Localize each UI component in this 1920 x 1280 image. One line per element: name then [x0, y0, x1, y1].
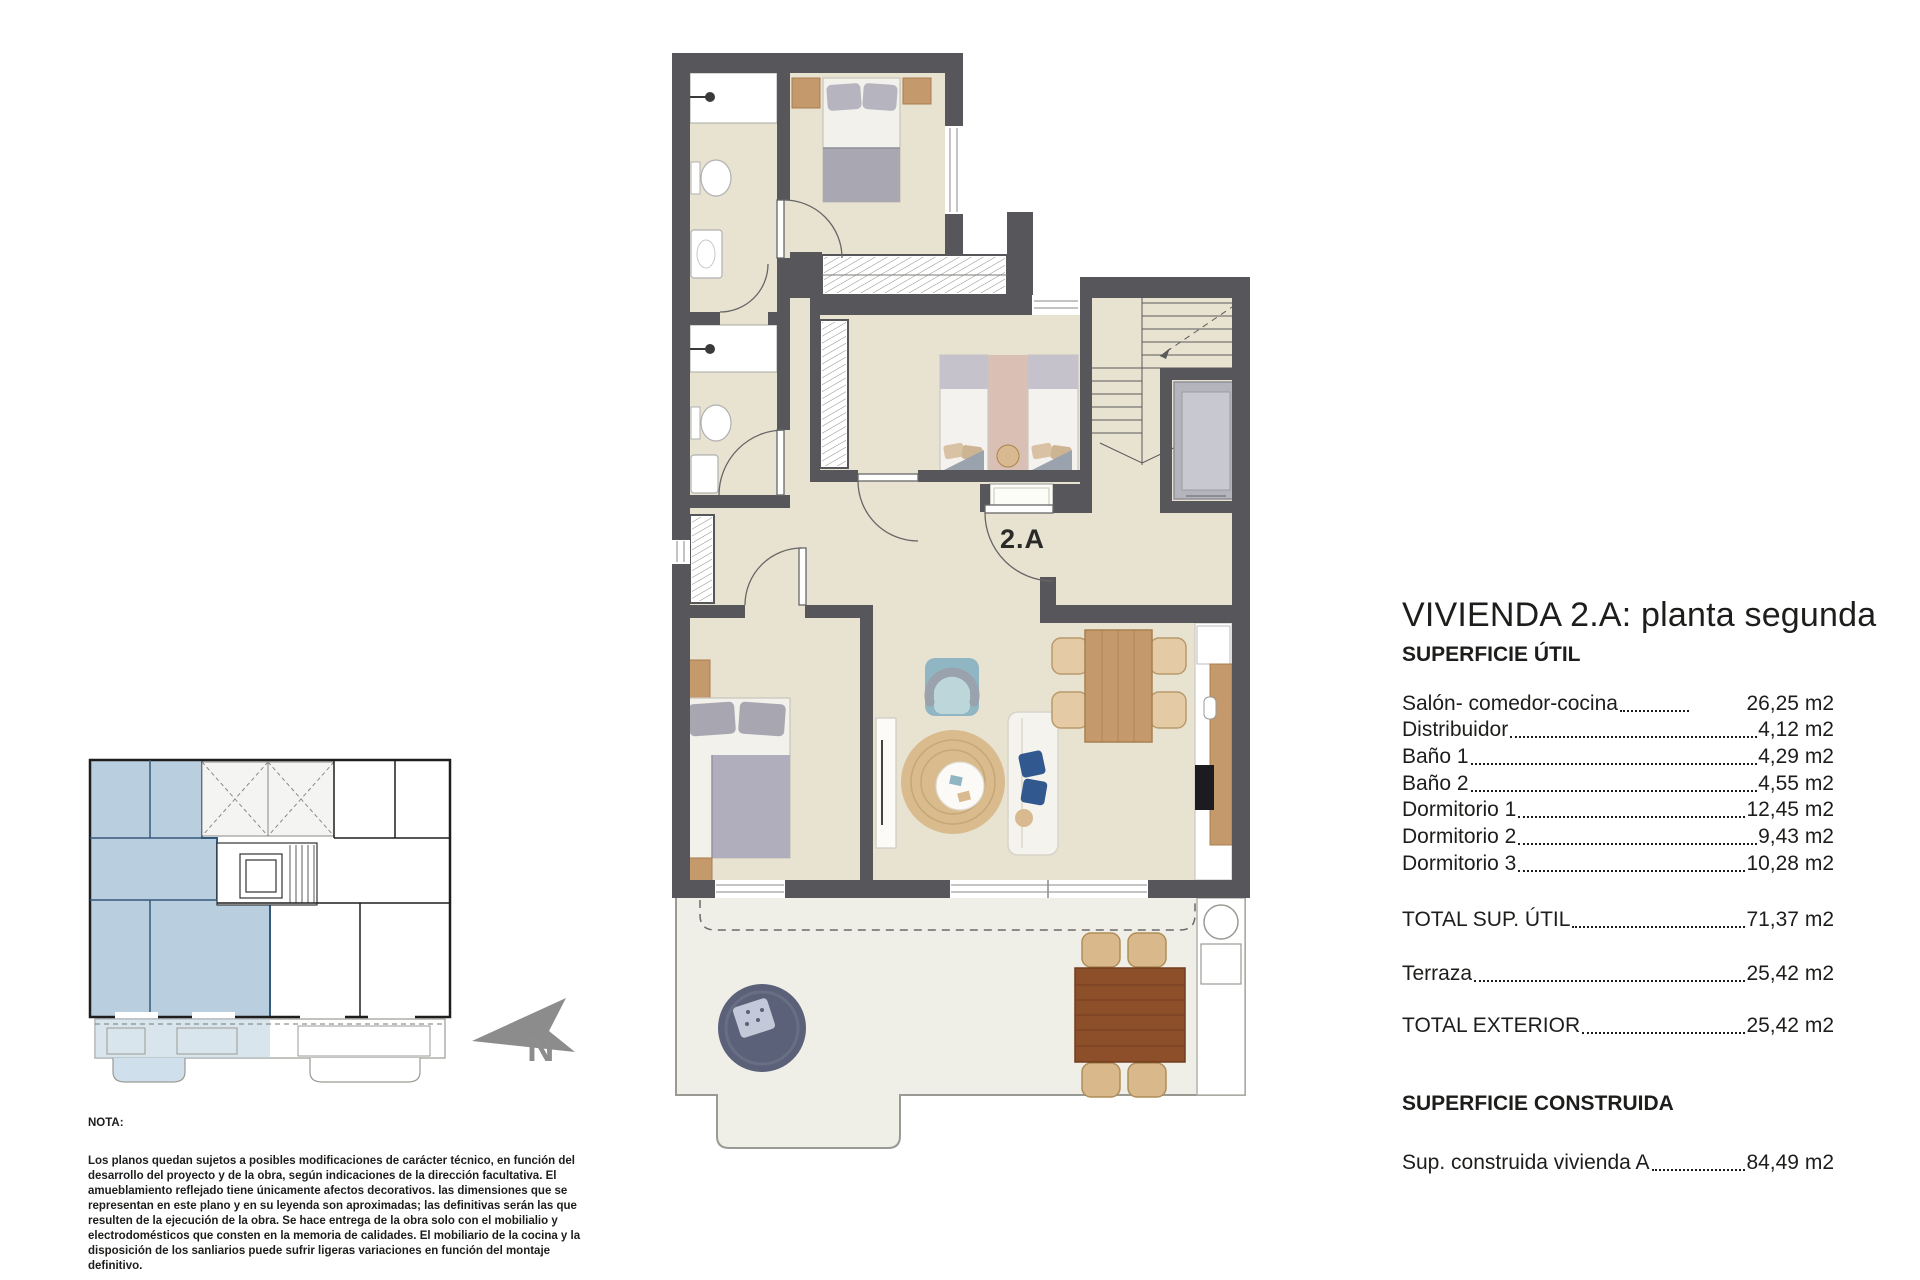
shower-head-icon: [705, 344, 715, 354]
row-label: Dormitorio 3: [1402, 852, 1516, 876]
row-label: Dormitorio 1: [1402, 798, 1516, 822]
terrace-basin: [1204, 905, 1238, 939]
dot-leader: [1572, 926, 1745, 928]
row-label: Salón- comedor-cocina: [1402, 692, 1618, 716]
main-floorplan: [672, 53, 1250, 1148]
tv-console: [876, 718, 896, 848]
row-label: Dormitorio 2: [1402, 825, 1516, 849]
kitchen: [1195, 623, 1232, 880]
page-title: VIVIENDA 2.A: planta segunda: [1402, 596, 1834, 635]
surface-row: Baño 1 4,29 m2: [1402, 742, 1834, 769]
section-superficie-construida: SUPERFICIE CONSTRUIDA: [1402, 1092, 1834, 1116]
row-value: 84,49 m2: [1746, 1151, 1834, 1175]
row-value: 4,29 m2: [1758, 745, 1834, 769]
dot-leader: [1620, 710, 1690, 712]
terrace: [676, 898, 1245, 1148]
row-value: 25,42 m2: [1746, 962, 1834, 986]
surface-row: Dormitorio 2 9,43 m2: [1402, 822, 1834, 849]
row-label: Sup. construida vivienda A: [1402, 1151, 1650, 1175]
north-arrow-icon: [472, 998, 575, 1052]
row-value: 4,12 m2: [1758, 718, 1834, 742]
twin-bed: [1028, 355, 1078, 473]
row-value: 25,42 m2: [1746, 1014, 1834, 1038]
key-plan-core: [217, 843, 317, 905]
dot-leader: [1652, 1169, 1746, 1171]
dot-leader: [1582, 1032, 1745, 1034]
dot-leader: [1518, 870, 1745, 872]
sink-1: [691, 230, 722, 278]
row-value: 71,37 m2: [1746, 908, 1834, 932]
key-plan-terraces: [95, 1019, 445, 1082]
dot-leader: [1510, 736, 1757, 738]
plan-sheet: 2.A N VIVIENDA 2.A: planta segunda SUPER…: [0, 0, 1920, 1280]
row-value: 12,45 m2: [1746, 798, 1834, 822]
row-label: Distribuidor: [1402, 718, 1508, 742]
north-label: N: [527, 1028, 554, 1071]
terrace-bean-chair: [718, 984, 806, 1072]
row-label: TOTAL EXTERIOR: [1402, 1014, 1580, 1038]
row-label: TOTAL SUP. ÚTIL: [1402, 908, 1570, 932]
sofa: [1008, 712, 1058, 855]
section-superficie-util: SUPERFICIE ÚTIL: [1402, 643, 1834, 667]
kitchen-sink: [1204, 697, 1216, 719]
row-value: 26,25 m2: [1746, 692, 1834, 716]
surface-panel: VIVIENDA 2.A: planta segunda SUPERFICIE …: [1402, 596, 1834, 1175]
sup-construida-row: Sup. construida vivienda A 84,49 m2: [1402, 1148, 1834, 1175]
surface-row: Dormitorio 1 12,45 m2: [1402, 796, 1834, 823]
row-label: Terraza: [1402, 962, 1472, 986]
total-sup-util-row: TOTAL SUP. ÚTIL 71,37 m2: [1402, 905, 1834, 932]
row-value: 4,55 m2: [1758, 772, 1834, 796]
kitchen-counter: [1210, 664, 1232, 845]
dot-leader: [1518, 843, 1757, 845]
fridge: [1197, 626, 1230, 664]
row-value: 10,28 m2: [1746, 852, 1834, 876]
nota-body: Los planos quedan sujetos a posibles mod…: [88, 1154, 604, 1274]
shower-head-icon: [705, 92, 715, 102]
round-rug: [901, 730, 1005, 834]
nota-block: NOTA: Los planos quedan sujetos a posibl…: [88, 1116, 604, 1273]
entry-door: [985, 505, 1053, 513]
toilet-1: [691, 162, 700, 194]
nota-title: NOTA:: [88, 1116, 604, 1131]
dot-leader: [1518, 816, 1745, 818]
dot-leader: [1474, 980, 1745, 982]
row-value: 9,43 m2: [1758, 825, 1834, 849]
nightstand: [903, 78, 931, 104]
twin-bed: [940, 355, 988, 473]
key-plan: [90, 760, 450, 1082]
surface-row: Salón- comedor-cocina 26,25 m2: [1402, 689, 1834, 716]
unit-label: 2.A: [1000, 524, 1045, 555]
side-table: [936, 762, 984, 810]
toilet-2: [691, 407, 700, 439]
desk: [792, 78, 820, 108]
armchair: [925, 658, 979, 716]
surface-row: Baño 2 4,55 m2: [1402, 769, 1834, 796]
oven: [1195, 765, 1214, 810]
sink-2: [691, 455, 718, 493]
surface-rows: Salón- comedor-cocina 26,25 m2 Distribui…: [1402, 689, 1834, 876]
surface-row: Distribuidor 4,12 m2: [1402, 716, 1834, 743]
total-exterior-row: TOTAL EXTERIOR 25,42 m2: [1402, 1011, 1834, 1038]
dot-leader: [1471, 790, 1758, 792]
clock: [997, 445, 1019, 467]
dot-leader: [1471, 763, 1758, 765]
terraza-row: Terraza 25,42 m2: [1402, 960, 1834, 987]
row-label: Baño 1: [1402, 745, 1469, 769]
row-label: Baño 2: [1402, 772, 1469, 796]
surface-row: Dormitorio 3 10,28 m2: [1402, 849, 1834, 876]
